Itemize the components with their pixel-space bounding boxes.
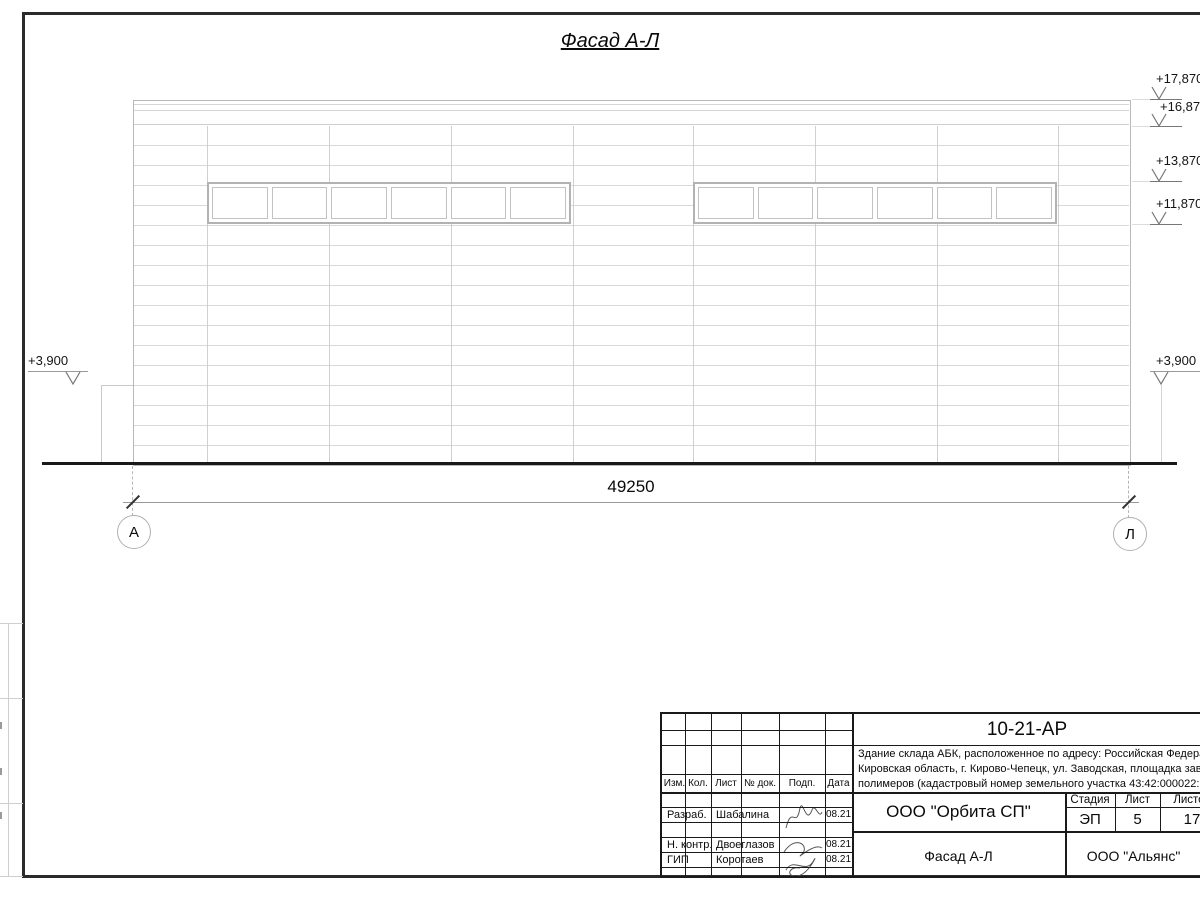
panel-joint [573,126,574,463]
project-description: Здание склада АБК, расположенное по адре… [858,747,1200,792]
titleblock-line [1065,807,1200,808]
drawing-sheet: Фасад А-Л +17,870 +16,870 +13,8 [0,0,1200,900]
window-pane [698,187,754,219]
extension-line [1128,466,1129,518]
elevation-label: +17,870 [1156,71,1200,86]
titleblock-line [1160,792,1161,831]
panel-joint [693,126,694,463]
titleblock-line [662,807,852,808]
sheet-label: Лист [1115,793,1160,807]
titleblock-line [662,774,852,775]
window-pane [996,187,1052,219]
elevation-label: +3,900 [1156,353,1196,368]
parapet-line [134,104,1129,105]
elevation-label: +11,870 [1156,196,1200,211]
window-pane [937,187,993,219]
panel-joint [451,126,452,463]
elevation-label: +16,870 [1160,99,1200,114]
panel-joint [937,126,938,463]
edge-stamp-line [0,698,23,699]
edge-stamp-line [0,803,23,804]
window-pane [391,187,447,219]
sheet-value: 5 [1115,808,1160,830]
rev-header-izm: Изм. [664,774,685,792]
titleblock-line [779,714,780,878]
dimension-line [123,502,1139,503]
window-pane [451,187,507,219]
window-pane [510,187,566,219]
rev-header-kol: Кол. [685,774,711,792]
description-line: Здание склада АБК, расположенное по адре… [858,747,1200,762]
level-leader-line [1161,385,1162,462]
ground-line [42,462,1177,465]
sig-name: Двоеглазов [713,837,782,852]
rev-header-data: Дата [825,774,852,792]
level-extension [1132,224,1152,225]
siding-panels [134,126,1129,446]
stage-value: ЭП [1065,808,1115,830]
panel-joint [1058,126,1059,463]
ramp-line [101,385,133,386]
signature-scribble [780,832,826,878]
elevation-arrow-icon [65,371,81,385]
elevation-arrow-icon [1153,371,1169,385]
level-extension [1132,99,1152,100]
description-line: Кировская область, г. Кирово-Чепецк, ул.… [858,762,1200,777]
title-block: Изм. Кол. Лист № док. Подп. Дата Разраб.… [660,712,1200,878]
edge-stamp-line [0,623,23,624]
parapet-line [134,110,1129,111]
design-company: ООО "Орбита СП" [854,794,1063,830]
rev-header-doc: № док. [741,774,779,792]
sig-role: Н. контр. [664,837,714,852]
level-extension [1132,181,1152,182]
window-pane [331,187,387,219]
stage-label: Стадия [1065,793,1115,807]
panel-joint [815,126,816,463]
titleblock-line [825,714,826,878]
titleblock-line [685,714,686,878]
edge-stamp-line [0,876,23,877]
axis-letter: А [129,524,139,541]
axis-letter: Л [1125,526,1135,543]
titleblock-line [662,822,852,823]
panel-joint [329,126,330,463]
elevation-arrow-icon [1151,86,1167,100]
elevation-arrow-icon [1151,211,1167,225]
view-title: Фасад А-Л [500,30,720,53]
titleblock-line [662,867,852,868]
titleblock-line [662,852,852,853]
elevation-arrow-icon [1151,168,1167,182]
rev-header-list: Лист [711,774,741,792]
description-line: полимеров (кадастровый номер земельного … [858,777,1200,792]
edge-stamp-mark [0,768,2,775]
sig-role: ГИП [664,852,714,867]
titleblock-line [662,792,1200,794]
signature-scribble [782,800,824,834]
elevation-arrow-icon [1151,113,1167,127]
panel-joint [207,126,208,463]
sig-role: Разраб. [664,807,714,822]
window-pane [758,187,814,219]
window-pane [272,187,328,219]
sig-date: 08.21 [825,852,852,867]
titleblock-line [1115,792,1116,831]
sig-name: Коротаев [713,852,782,867]
titleblock-line [711,714,712,878]
window-band-left [207,182,571,224]
parapet-line [134,124,1129,125]
dimension-value: 49250 [561,477,701,497]
window-band-right [693,182,1057,224]
titleblock-line [662,730,852,731]
sheets-value: 17 [1160,808,1200,830]
titleblock-line [741,714,742,878]
window-pane [817,187,873,219]
sheets-label: Листов [1160,793,1200,807]
sig-date: 08.21 [825,837,852,852]
view-name: Фасад А-Л [854,833,1063,878]
sig-date: 08.21 [825,807,852,822]
titleblock-line [662,745,1200,746]
edge-stamp-mark [0,722,2,729]
window-pane [877,187,933,219]
level-extension [1132,126,1152,127]
edge-stamp-mark [0,812,2,819]
frame-left [22,12,25,878]
frame-top [22,12,1200,15]
doc-number: 10-21-АР [854,716,1200,744]
extension-line [132,466,133,516]
elevation-label: +13,870 [1156,153,1200,168]
elevation-label: +3,900 [28,353,68,368]
titleblock-line [662,837,852,838]
rev-header-podp: Подп. [779,774,825,792]
axis-bubble-l: Л [1113,517,1147,551]
client-company: ООО "Альянс" [1065,833,1200,878]
titleblock-line [852,714,854,878]
sig-name: Шабалина [713,807,782,822]
ramp-line [101,385,102,464]
axis-bubble-a: А [117,515,151,549]
window-pane [212,187,268,219]
titleblock-line [852,831,1200,833]
edge-stamp-line [8,623,9,876]
titleblock-line [1065,792,1067,878]
